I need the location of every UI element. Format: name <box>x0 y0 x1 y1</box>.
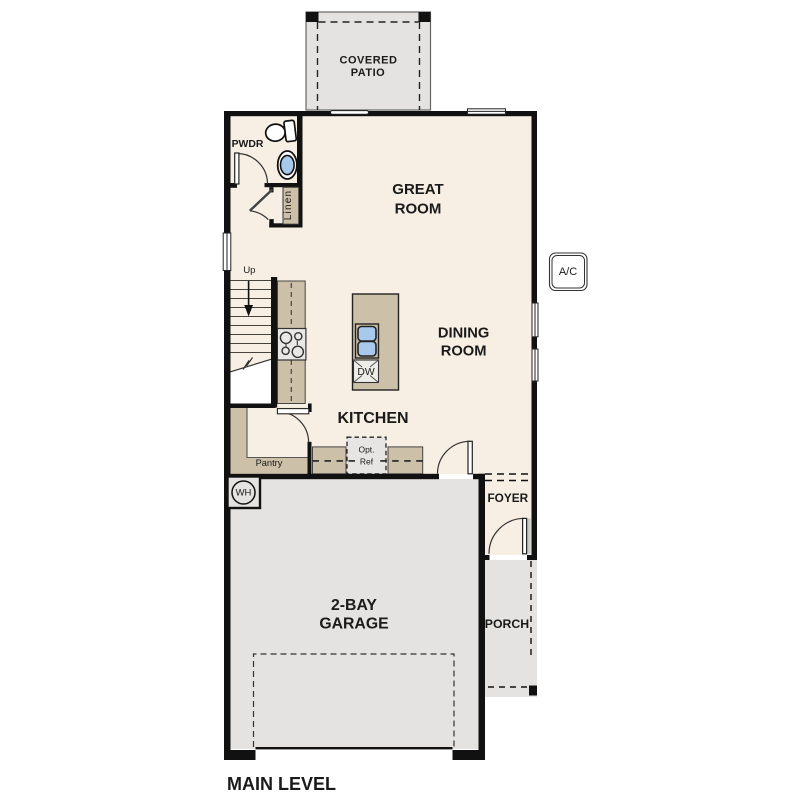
svg-text:DINING: DINING <box>438 325 489 341</box>
svg-text:GREAT: GREAT <box>392 181 443 198</box>
svg-text:ROOM: ROOM <box>441 344 487 360</box>
svg-text:PORCH: PORCH <box>485 617 530 631</box>
svg-text:Linen: Linen <box>283 190 294 220</box>
svg-text:Ref: Ref <box>360 457 374 467</box>
svg-text:A/C: A/C <box>559 266 577 278</box>
svg-text:PWDR: PWDR <box>232 139 264 150</box>
svg-text:WH: WH <box>236 488 252 499</box>
svg-text:Pantry: Pantry <box>256 458 283 468</box>
svg-text:FOYER: FOYER <box>487 491 528 505</box>
svg-text:ROOM: ROOM <box>395 201 442 218</box>
svg-text:Up: Up <box>243 265 255 276</box>
svg-text:MAIN LEVEL: MAIN LEVEL <box>227 774 336 794</box>
svg-text:KITCHEN: KITCHEN <box>337 410 408 427</box>
svg-text:DW: DW <box>357 367 375 378</box>
svg-text:2-BAY: 2-BAY <box>331 597 377 614</box>
svg-text:PATIO: PATIO <box>351 67 385 79</box>
svg-text:Opt.: Opt. <box>358 444 374 454</box>
svg-text:COVERED: COVERED <box>340 54 398 66</box>
svg-text:GARAGE: GARAGE <box>319 616 388 633</box>
